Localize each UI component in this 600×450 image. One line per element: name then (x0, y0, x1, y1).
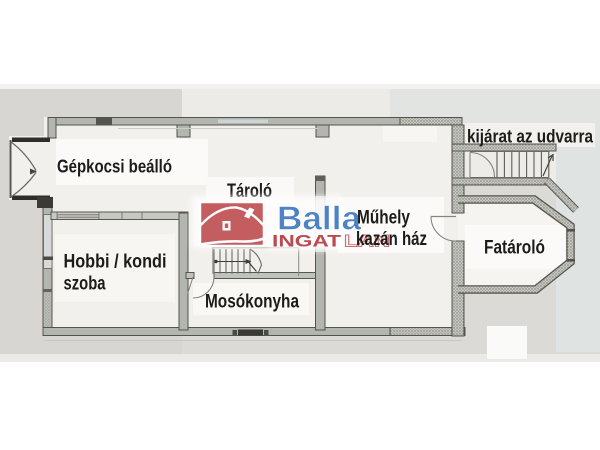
svg-text:Fatároló: Fatároló (484, 238, 545, 259)
svg-text:Hobbi / kondi: Hobbi / kondi (64, 252, 167, 273)
svg-text:kijárat az udvarra: kijárat az udvarra (467, 126, 594, 147)
svg-text:INGAT: INGAT (272, 232, 342, 251)
svg-text:Gépkocsi beálló: Gépkocsi beálló (57, 156, 172, 177)
svg-text:Mosókonyha: Mosókonyha (205, 292, 299, 313)
svg-text:szoba: szoba (64, 274, 106, 295)
svg-text:Műhely: Műhely (357, 207, 410, 229)
svg-text:kazán ház: kazán ház (356, 228, 427, 250)
